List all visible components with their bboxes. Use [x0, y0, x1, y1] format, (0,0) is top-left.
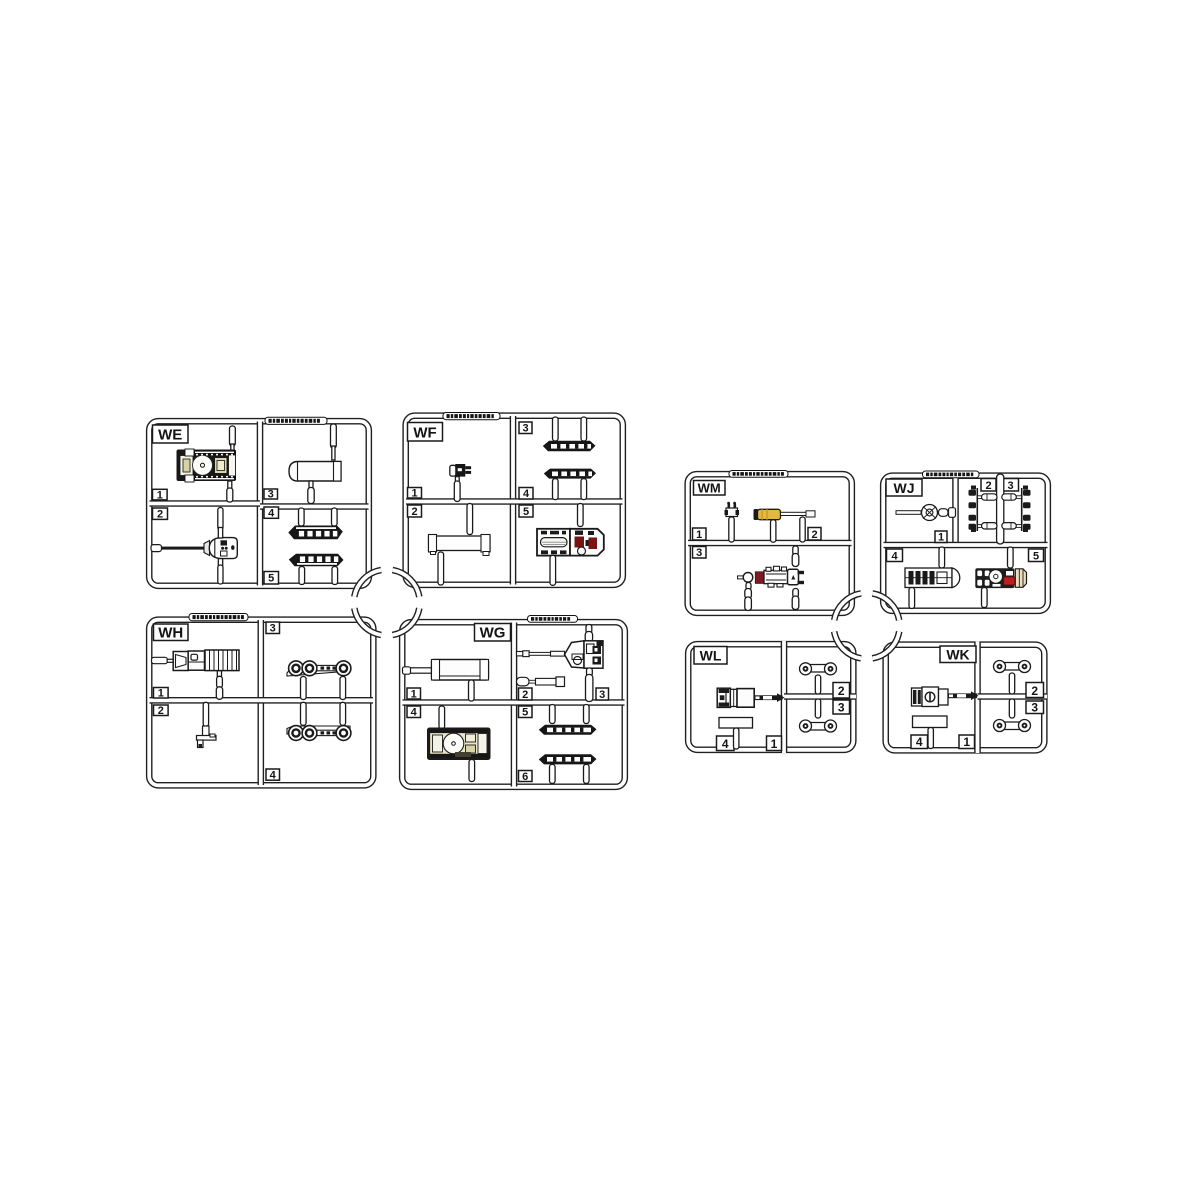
svg-text:2: 2 — [811, 529, 817, 541]
svg-text:4: 4 — [916, 735, 923, 749]
svg-text:1: 1 — [157, 489, 163, 501]
svg-text:1: 1 — [938, 532, 944, 544]
svg-text:4: 4 — [722, 737, 729, 751]
svg-text:2: 2 — [411, 506, 417, 518]
svg-text:1: 1 — [696, 529, 702, 541]
svg-text:5: 5 — [522, 707, 528, 719]
svg-text:3: 3 — [1007, 480, 1013, 492]
svg-text:6: 6 — [522, 771, 528, 783]
svg-text:3: 3 — [696, 547, 702, 559]
svg-text:3: 3 — [1031, 701, 1038, 715]
svg-text:3: 3 — [270, 623, 276, 635]
svg-text:5: 5 — [1033, 550, 1039, 562]
svg-text:WJ: WJ — [894, 480, 915, 496]
svg-text:1: 1 — [411, 488, 417, 500]
svg-text:4: 4 — [523, 488, 530, 500]
svg-text:3: 3 — [838, 701, 845, 715]
svg-text:4: 4 — [411, 707, 418, 719]
svg-text:1: 1 — [411, 688, 417, 700]
svg-text:5: 5 — [268, 573, 274, 585]
svg-text:4: 4 — [268, 508, 275, 520]
svg-text:WH: WH — [158, 625, 183, 642]
svg-text:1: 1 — [158, 688, 164, 700]
svg-text:3: 3 — [599, 689, 605, 701]
svg-text:3: 3 — [522, 423, 528, 435]
svg-text:1: 1 — [771, 737, 778, 751]
svg-text:4: 4 — [891, 550, 898, 562]
svg-text:2: 2 — [1031, 684, 1038, 698]
svg-text:2: 2 — [157, 509, 163, 521]
svg-text:3: 3 — [268, 489, 274, 501]
svg-text:5: 5 — [523, 506, 529, 518]
svg-text:WK: WK — [946, 646, 969, 662]
svg-text:WG: WG — [480, 625, 506, 642]
svg-text:WF: WF — [413, 424, 436, 441]
svg-text:4: 4 — [270, 769, 277, 781]
svg-text:2: 2 — [838, 684, 845, 698]
svg-text:WM: WM — [698, 480, 721, 495]
svg-text:WE: WE — [158, 427, 182, 444]
svg-text:WL: WL — [700, 648, 722, 664]
svg-text:2: 2 — [522, 689, 528, 701]
svg-text:2: 2 — [985, 480, 991, 492]
svg-text:2: 2 — [158, 705, 164, 717]
svg-text:1: 1 — [963, 735, 970, 749]
